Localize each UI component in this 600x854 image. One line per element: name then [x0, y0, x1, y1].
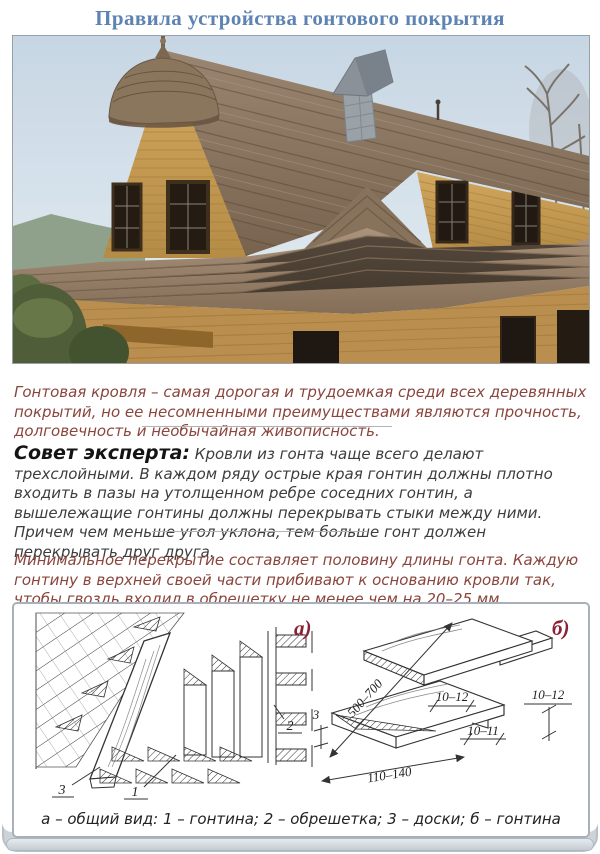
dim-right-gap: 10–12	[532, 687, 565, 702]
dim-width: 110–140	[366, 764, 413, 786]
shingle-section-rows	[100, 747, 252, 783]
upper-board	[364, 619, 552, 685]
dim-tongue: 10–11	[467, 723, 499, 738]
front-shingles	[184, 641, 262, 757]
figure-caption: а – общий вид: 1 – гонтина; 2 – обрешетк…	[14, 810, 588, 828]
content-card: Правила устройства гонтового покрытия	[2, 2, 598, 832]
shingle-diagram: 3 1 2 а)	[16, 607, 586, 803]
callout-1: 1	[132, 785, 139, 800]
expert-advice-label: Совет эксперта:	[14, 442, 190, 464]
callout-2: 2	[287, 719, 294, 734]
intro-paragraph: Гонтовая кровля – самая дорогая и трудое…	[14, 383, 588, 442]
separator-line	[142, 426, 392, 427]
overlap-text: Минимальное перекрытие составляет полови…	[14, 551, 578, 608]
figure-label-b: б)	[552, 616, 569, 640]
dim-edge: 3	[312, 707, 320, 722]
house-photo	[12, 35, 590, 364]
technical-figure: 3 1 2 а)	[12, 602, 590, 838]
page-title: Правила устройства гонтового покрытия	[2, 6, 598, 31]
dim-top-gap: 10–12	[436, 689, 469, 704]
house-photo-illustration	[13, 36, 589, 363]
callout-3: 3	[58, 783, 66, 798]
bottom-bar	[6, 838, 594, 851]
assembly-drawing	[36, 613, 312, 799]
figure-label-a: а)	[294, 616, 312, 640]
expert-advice-paragraph: Совет эксперта: Кровли из гонта чаще все…	[14, 444, 588, 562]
battens	[268, 627, 312, 767]
separator-line	[152, 531, 367, 532]
